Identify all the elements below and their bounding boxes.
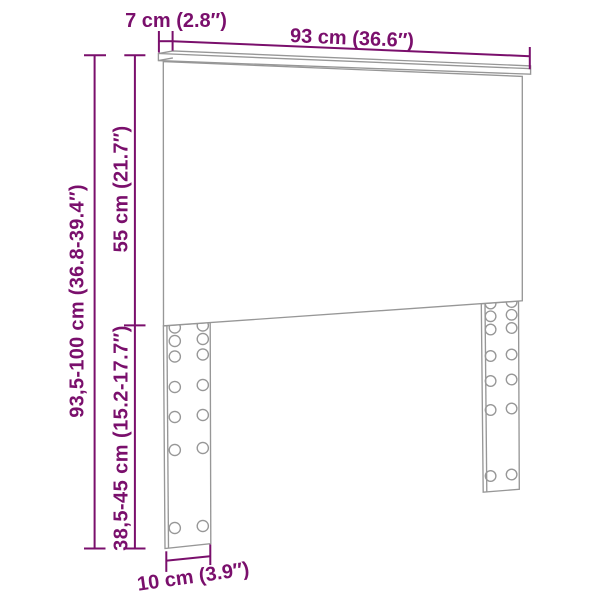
svg-text:7 cm (2.8″): 7 cm (2.8″) [125,10,227,32]
svg-text:93,5-100 cm (36.8-39.4″): 93,5-100 cm (36.8-39.4″) [67,184,89,418]
svg-text:55 cm (21.7″): 55 cm (21.7″) [111,126,133,253]
svg-text:38,5-45 cm (15.2-17.7″): 38,5-45 cm (15.2-17.7″) [111,325,133,551]
